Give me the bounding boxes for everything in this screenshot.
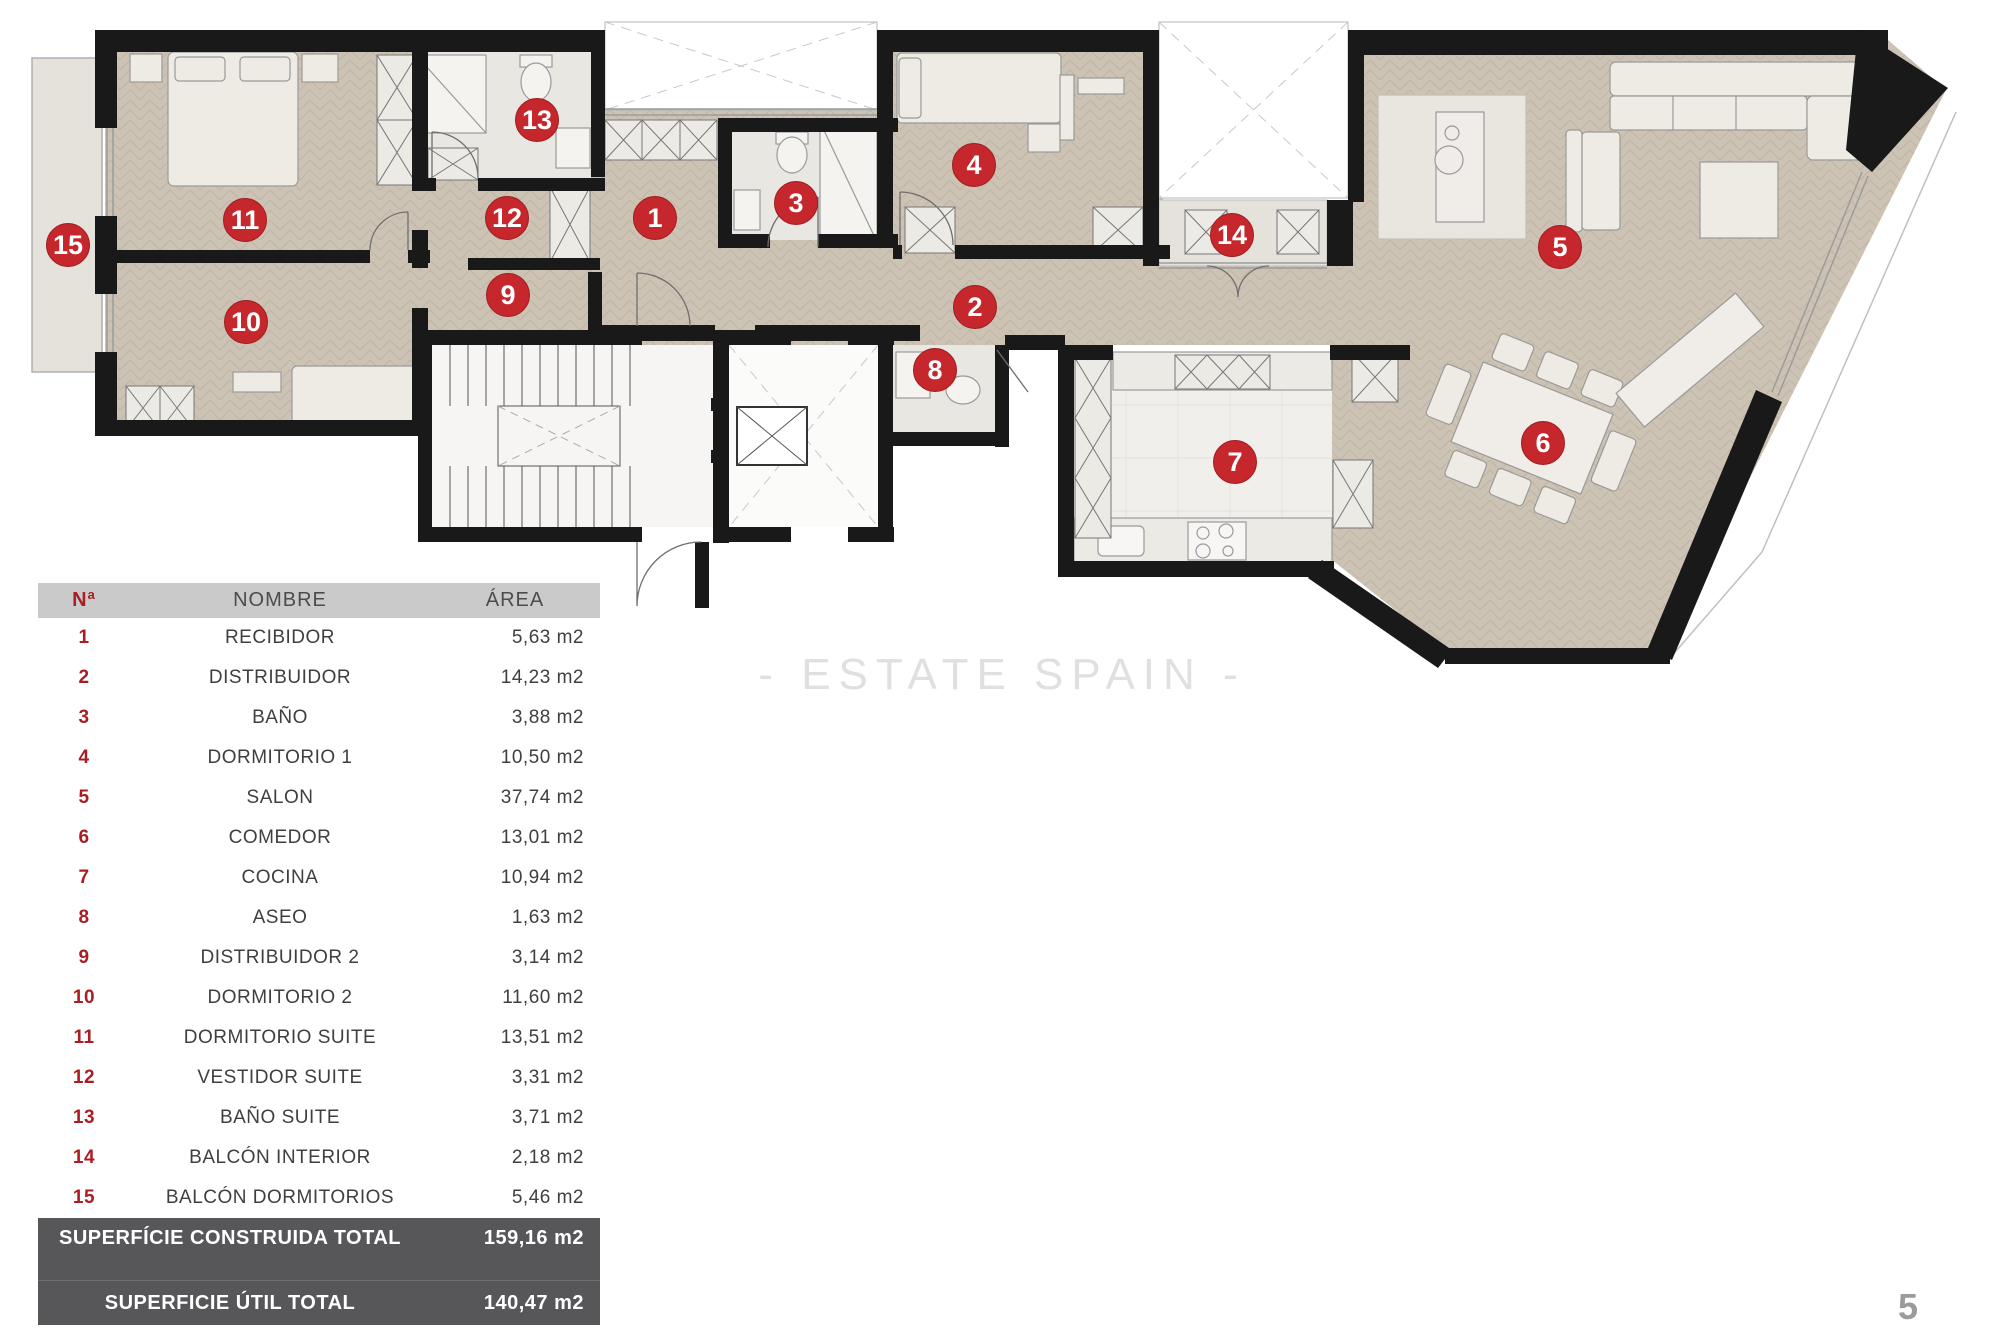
elevator-car (737, 407, 807, 465)
room-area: 5,63 m2 (430, 627, 600, 649)
room-area: 3,14 m2 (430, 947, 600, 969)
table-row: 14 BALCÓN INTERIOR 2,18 m2 (38, 1138, 600, 1178)
total-constructed-label: SUPERFÍCIE CONSTRUIDA TOTAL (38, 1227, 422, 1250)
sofa-back (1610, 62, 1864, 96)
table-header: Nª NOMBRE ÁREA (38, 583, 600, 618)
room-name: DORMITORIO 2 (130, 987, 430, 1009)
area-table: Nª NOMBRE ÁREA 1 RECIBIDOR 5,63 m2 2 DIS… (38, 583, 600, 1325)
room-marker-3: 3 (774, 181, 818, 225)
room-number: 6 (38, 827, 130, 849)
room-number: 3 (38, 707, 130, 729)
sofa-seats (1610, 96, 1807, 130)
room-marker-10: 10 (224, 300, 268, 344)
room-area: 3,71 m2 (430, 1107, 600, 1129)
room-marker-9: 9 (486, 273, 530, 317)
room-area: 37,74 m2 (430, 787, 600, 809)
table-row: 10 DORMITORIO 2 11,60 m2 (38, 978, 600, 1018)
header-num: Nª (38, 589, 130, 612)
room-area: 1,63 m2 (430, 907, 600, 929)
room-name: COMEDOR (130, 827, 430, 849)
loveseat-seat (1582, 132, 1620, 230)
room-area: 10,50 m2 (430, 747, 600, 769)
room-area: 11,60 m2 (430, 987, 600, 1009)
room-marker-14: 14 (1210, 213, 1254, 257)
room-marker-4: 4 (952, 143, 996, 187)
table-row: 1 RECIBIDOR 5,63 m2 (38, 618, 600, 658)
room-number: 1 (38, 627, 130, 649)
room-name: COCINA (130, 867, 430, 889)
bed-2 (292, 366, 420, 428)
room-name: DORMITORIO 1 (130, 747, 430, 769)
table-row: 5 SALON 37,74 m2 (38, 778, 600, 818)
room-marker-13: 13 (515, 98, 559, 142)
room-name: DORMITORIO SUITE (130, 1027, 430, 1049)
table-row: 12 VESTIDOR SUITE 3,31 m2 (38, 1058, 600, 1098)
table-row: 11 DORMITORIO SUITE 13,51 m2 (38, 1018, 600, 1058)
room-marker-5: 5 (1538, 225, 1582, 269)
room-marker-8: 8 (913, 348, 957, 392)
balcony-15-floor (32, 58, 102, 372)
room-name: BALCÓN INTERIOR (130, 1147, 430, 1169)
room-marker-1: 1 (633, 196, 677, 240)
toilet-suite (521, 63, 551, 101)
room-number: 10 (38, 987, 130, 1009)
room-number: 12 (38, 1067, 130, 1089)
total-constructed-row: SUPERFÍCIE CONSTRUIDA TOTAL 159,16 m2 (38, 1218, 600, 1280)
table-row: 13 BAÑO SUITE 3,71 m2 (38, 1098, 600, 1138)
totals-block: SUPERFÍCIE CONSTRUIDA TOTAL 159,16 m2 SU… (38, 1218, 600, 1325)
room-area: 3,31 m2 (430, 1067, 600, 1089)
header-name: NOMBRE (130, 589, 430, 612)
room-number: 11 (38, 1027, 130, 1049)
room-number: 7 (38, 867, 130, 889)
room-area: 2,18 m2 (430, 1147, 600, 1169)
room-name: RECIBIDOR (130, 627, 430, 649)
room-name: BAÑO (130, 707, 430, 729)
table-row: 7 COCINA 10,94 m2 (38, 858, 600, 898)
room-number: 14 (38, 1147, 130, 1169)
total-usable-row: SUPERFICIE ÚTIL TOTAL 140,47 m2 (38, 1280, 600, 1325)
floorplan-page: 1 2 3 4 5 6 7 8 9 10 11 12 13 14 15 Nª N… (0, 0, 2000, 1343)
room-marker-6: 6 (1521, 421, 1565, 465)
total-usable-value: 140,47 m2 (422, 1292, 600, 1315)
room-marker-15: 15 (46, 223, 90, 267)
sink-bath (734, 190, 760, 230)
room-area: 13,51 m2 (430, 1027, 600, 1049)
room-marker-2: 2 (953, 285, 997, 329)
header-area: ÁREA (430, 589, 600, 612)
room-name: DISTRIBUIDOR 2 (130, 947, 430, 969)
room-number: 2 (38, 667, 130, 689)
room-area: 5,46 m2 (430, 1187, 600, 1209)
room-area: 10,94 m2 (430, 867, 600, 889)
coffee-table (1700, 162, 1778, 238)
watermark: - ESTATE SPAIN - (758, 650, 1245, 700)
total-usable-label: SUPERFICIE ÚTIL TOTAL (38, 1292, 422, 1315)
room-number: 5 (38, 787, 130, 809)
room-area: 14,23 m2 (430, 667, 600, 689)
table-row: 15 BALCÓN DORMITORIOS 5,46 m2 (38, 1178, 600, 1218)
table-row: 9 DISTRIBUIDOR 2 3,14 m2 (38, 938, 600, 978)
room-name: BALCÓN DORMITORIOS (130, 1187, 430, 1209)
room-name: ASEO (130, 907, 430, 929)
room-number: 15 (38, 1187, 130, 1209)
table-row: 8 ASEO 1,63 m2 (38, 898, 600, 938)
room-marker-11: 11 (223, 198, 267, 242)
total-constructed-value: 159,16 m2 (422, 1227, 600, 1250)
room-marker-7: 7 (1213, 440, 1257, 484)
table-row: 4 DORMITORIO 1 10,50 m2 (38, 738, 600, 778)
page-number: 5 (1898, 1286, 1918, 1328)
desk-lamp (1445, 126, 1459, 140)
room-name: VESTIDOR SUITE (130, 1067, 430, 1089)
table-row: 6 COMEDOR 13,01 m2 (38, 818, 600, 858)
room-number: 13 (38, 1107, 130, 1129)
room-area: 13,01 m2 (430, 827, 600, 849)
room-name: DISTRIBUIDOR (130, 667, 430, 689)
room-area: 3,88 m2 (430, 707, 600, 729)
room-number: 9 (38, 947, 130, 969)
table-row: 2 DISTRIBUIDOR 14,23 m2 (38, 658, 600, 698)
room-marker-12: 12 (485, 196, 529, 240)
room-name: BAÑO SUITE (130, 1107, 430, 1129)
room-number: 8 (38, 907, 130, 929)
loveseat-back (1566, 130, 1582, 232)
desk-chair (1435, 146, 1463, 174)
room-number: 4 (38, 747, 130, 769)
table-row: 3 BAÑO 3,88 m2 (38, 698, 600, 738)
room-name: SALON (130, 787, 430, 809)
sink-suite (556, 128, 590, 168)
toilet-bath (777, 137, 807, 173)
